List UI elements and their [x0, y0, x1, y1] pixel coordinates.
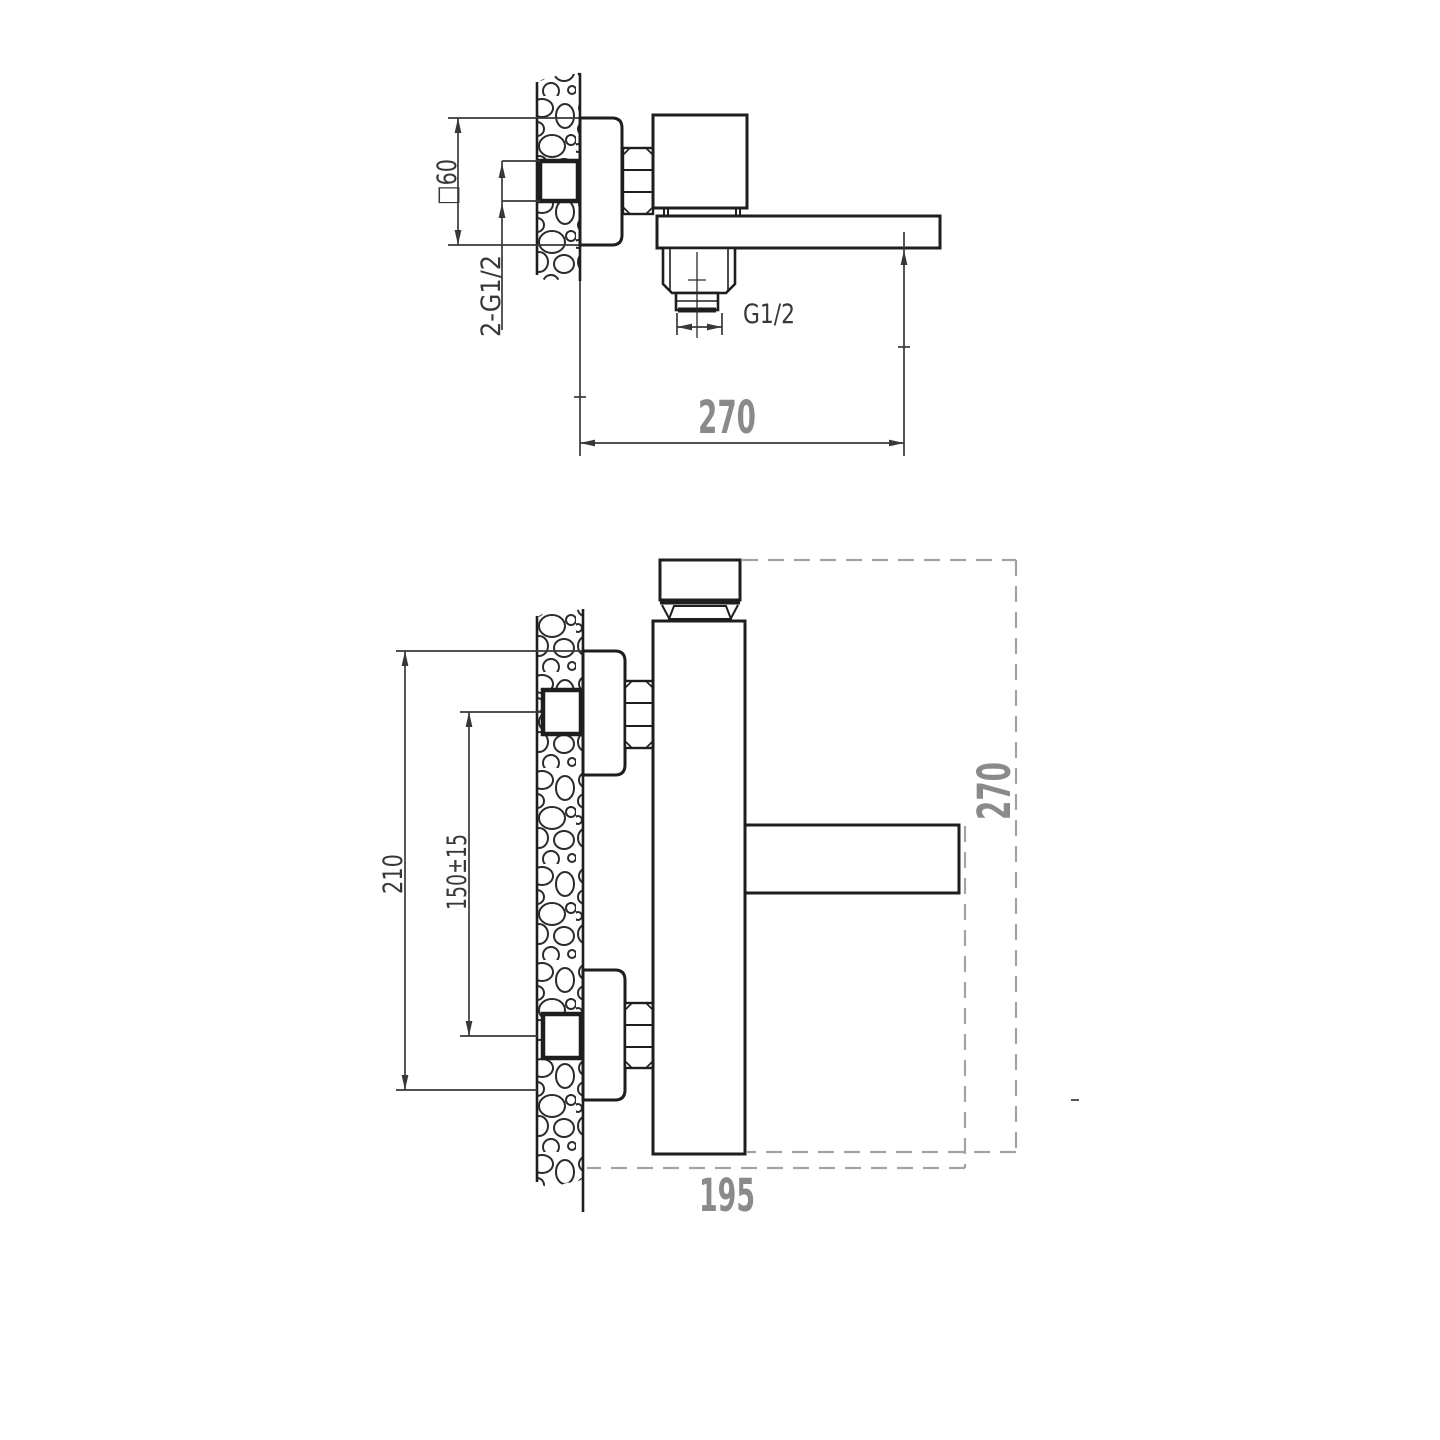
- dim-inlet-spacing: 150±15: [442, 712, 473, 1036]
- lever-handle-bar: [745, 825, 959, 893]
- dim-height-envelope-label: 270: [968, 762, 1021, 820]
- dim-outlet-thread-label: G1/2: [743, 299, 795, 330]
- faucet-technical-drawing: G1/2 □60 2-G1/2 270: [0, 0, 1440, 1440]
- dim-projection-label: 195: [699, 1169, 755, 1222]
- drawing-page: G1/2 □60 2-G1/2 270: [0, 0, 1440, 1440]
- mounting-plate-bottom: [583, 970, 625, 1100]
- spout: [657, 216, 940, 248]
- inlet-square-bottom: [543, 1014, 581, 1058]
- dim-inlet-thread-label: 2-G1/2: [476, 255, 507, 337]
- dim-overall-height: 210: [378, 651, 409, 1090]
- escutcheon-plate: [580, 118, 622, 245]
- valve-body: [653, 115, 747, 208]
- hex-nut-top: [625, 681, 653, 748]
- aerator: [663, 248, 735, 338]
- inlet-pipe-square: [540, 161, 578, 201]
- mounting-plate-top: [583, 651, 625, 775]
- handle-cap: [660, 560, 740, 620]
- dim-overall-height-label: 210: [378, 854, 409, 894]
- hex-nut: [623, 148, 653, 214]
- faucet-body-front: [653, 621, 745, 1154]
- dim-escutcheon-size: □60: [432, 118, 463, 245]
- inlet-square-top: [543, 690, 581, 734]
- dim-inlet-thread: 2-G1/2: [476, 161, 540, 337]
- dim-spout-reach-label: 270: [698, 391, 756, 444]
- hex-nut-bottom: [625, 1003, 653, 1068]
- dim-escutcheon-size-label: □60: [432, 159, 463, 205]
- side-view: G1/2 □60 2-G1/2 270: [432, 72, 940, 456]
- dim-spout-reach: 270: [574, 232, 910, 456]
- front-view: 210 150±15 270 195: [378, 560, 1079, 1222]
- dim-inlet-spacing-label: 150±15: [442, 834, 473, 910]
